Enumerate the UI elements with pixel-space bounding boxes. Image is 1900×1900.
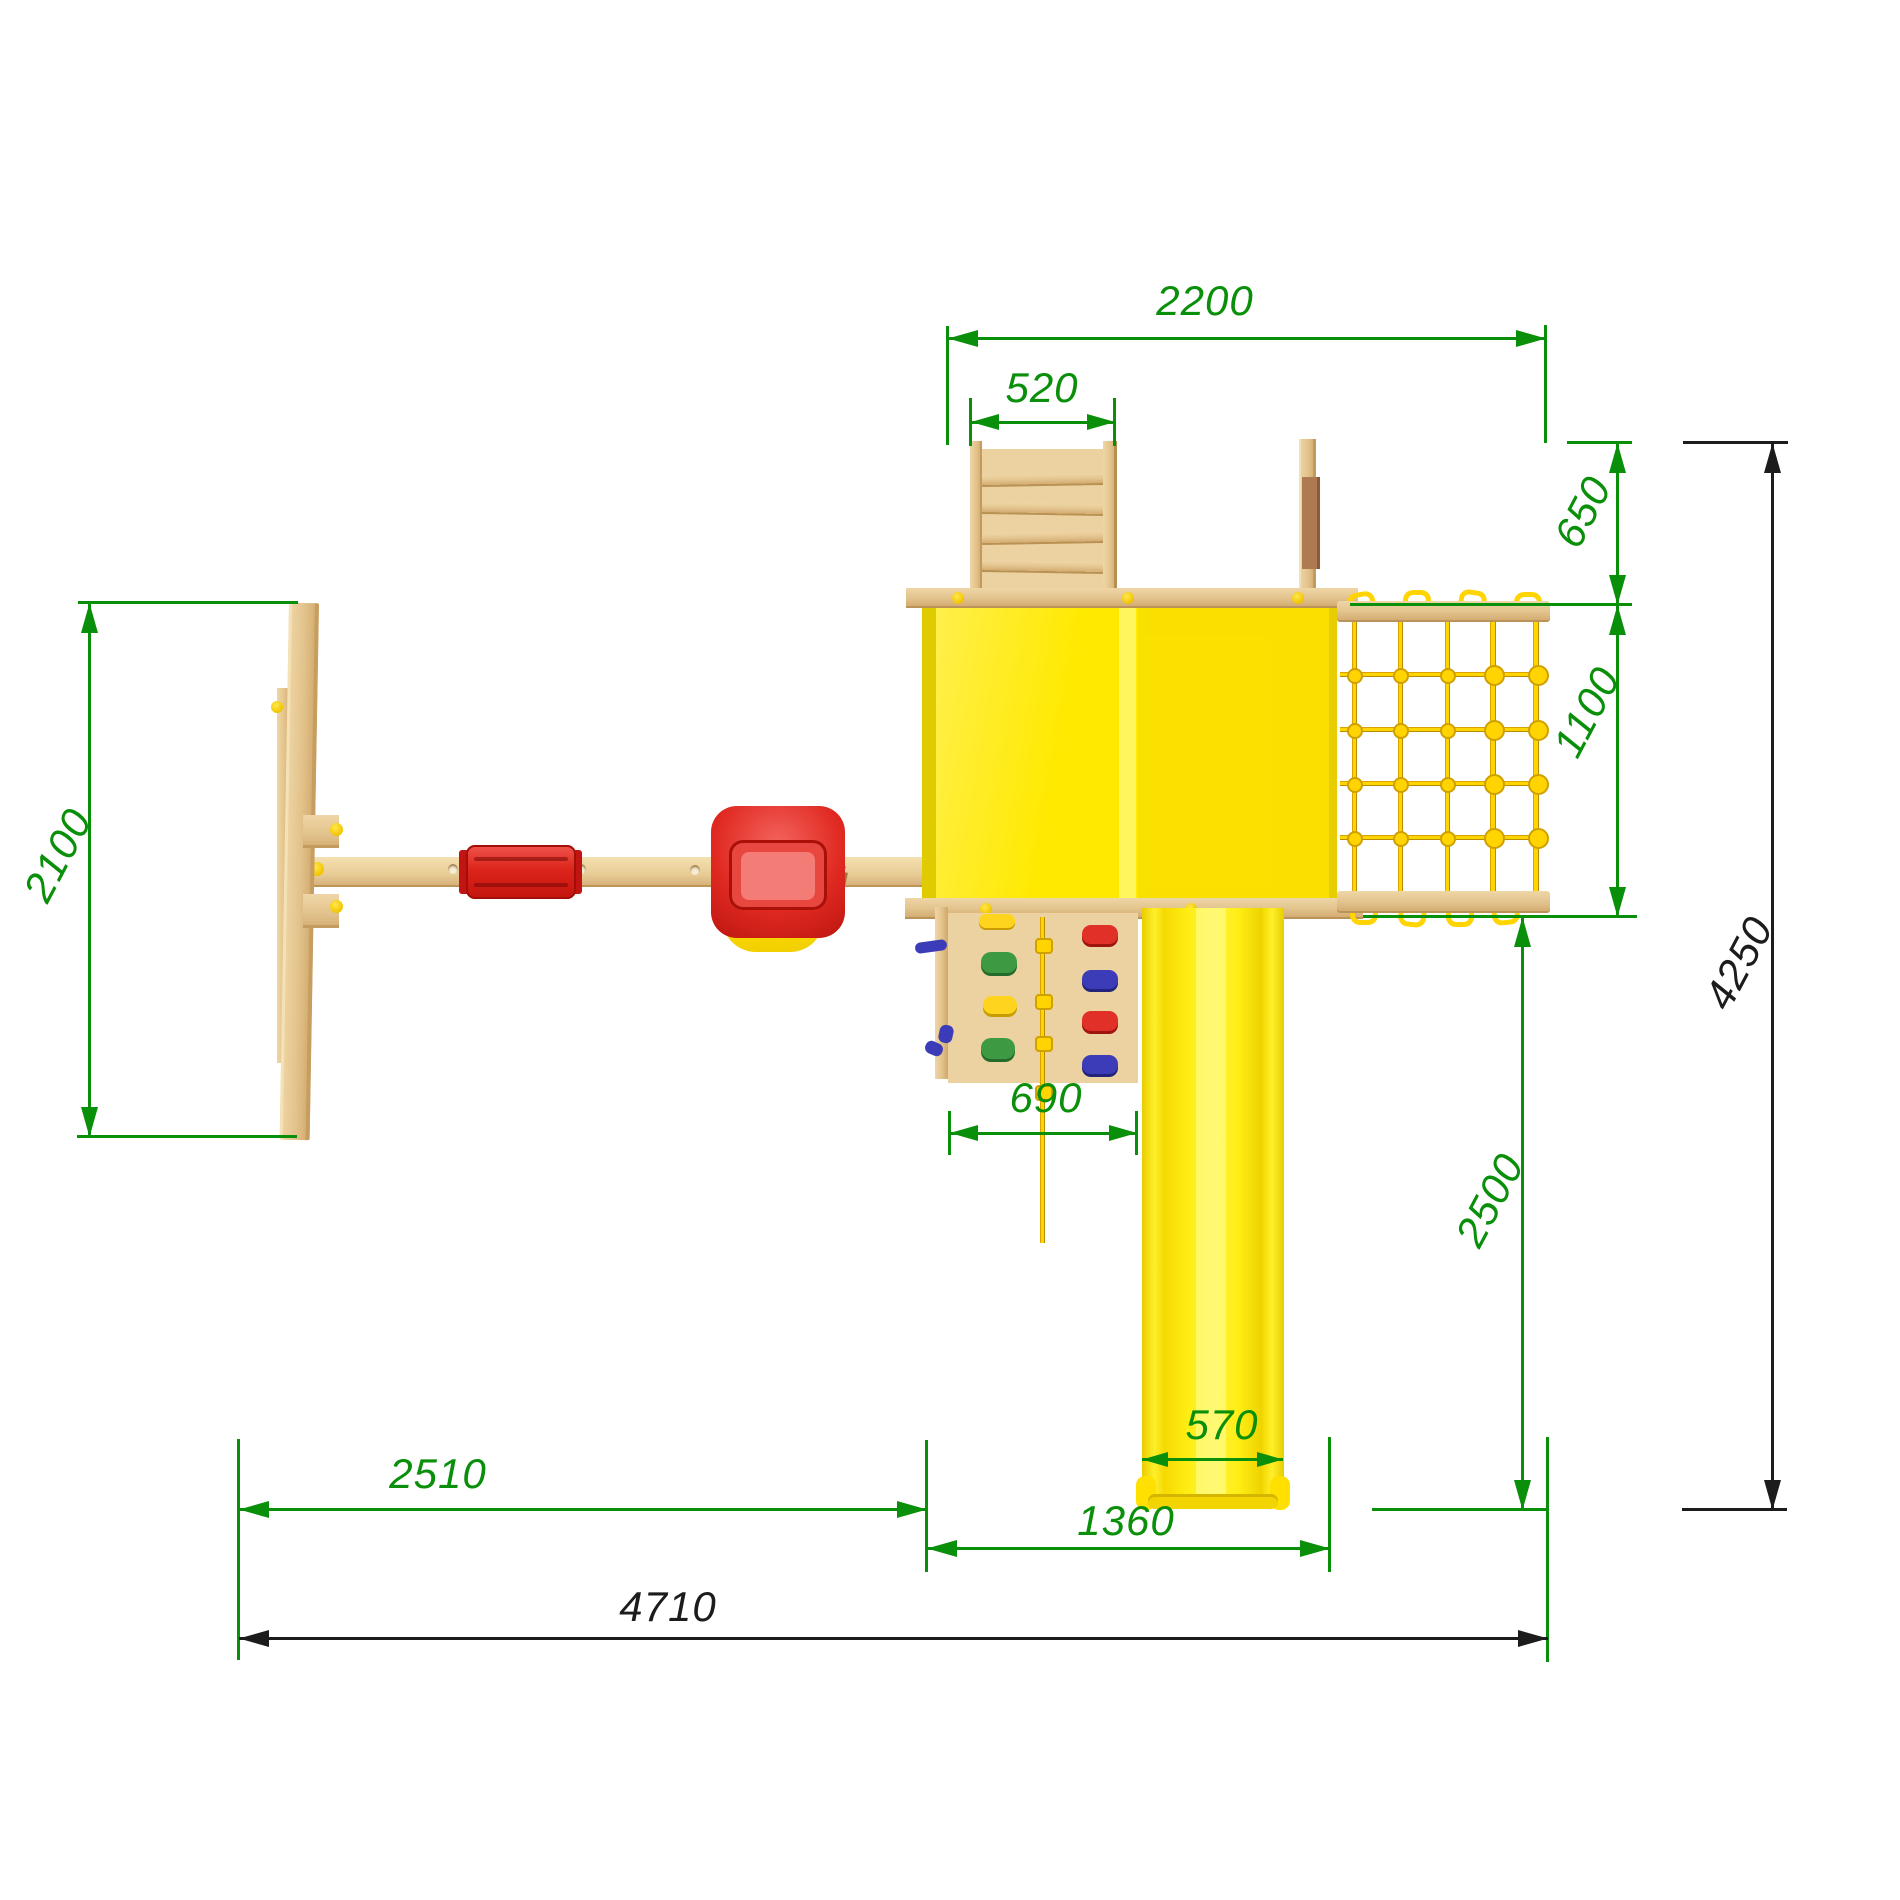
dim-1100-tick-mid — [1350, 603, 1632, 606]
net-rope-hook — [1446, 910, 1474, 927]
trim-bolt — [1122, 592, 1134, 604]
ladder-step — [982, 531, 1103, 543]
dim-650-tick-top — [1567, 441, 1632, 444]
net-knot — [1393, 668, 1409, 684]
dim-2200-ext-left — [946, 326, 949, 445]
tower-roof-sheen — [936, 592, 1116, 909]
trim-bolt — [1292, 592, 1304, 604]
net-knot — [1440, 668, 1456, 684]
dim-1100-tick-bottom — [1363, 915, 1637, 918]
net-knot — [1528, 665, 1549, 686]
dim-label-4710: 4710 — [619, 1583, 716, 1631]
net-vertical-rope — [1445, 608, 1450, 904]
baby-swing-seat-cushion — [741, 852, 815, 900]
slide-right-rail — [1262, 908, 1284, 1506]
dim-2100-tick-bottom — [77, 1135, 297, 1138]
ladder-step — [982, 560, 1103, 572]
dim-520-arrow-right — [1087, 414, 1115, 430]
ladder-step — [982, 502, 1103, 514]
beam-hole — [448, 864, 458, 874]
dim-520-arrow-left — [971, 414, 999, 430]
dim-label-4250: 4250 — [1695, 909, 1783, 1018]
net-knot — [1528, 828, 1549, 849]
dim-4250-tick-top — [1683, 441, 1788, 444]
dim-2510-arrow-left — [239, 1501, 269, 1518]
net-knot — [1484, 828, 1505, 849]
slide-left-rail — [1142, 908, 1165, 1506]
dim-overall-ext-right — [1546, 1437, 1549, 1662]
dim-690-arrow-left — [950, 1125, 978, 1141]
tower-roof-right-edge — [1329, 592, 1337, 909]
dim-1100-line — [1616, 605, 1619, 917]
dim-1360-ext-left — [925, 1440, 928, 1572]
dim-2500-arrow-down — [1514, 1480, 1531, 1510]
dim-2200-arrow-right — [1516, 330, 1546, 347]
dim-2100-line — [88, 603, 91, 1137]
dim-label-2510: 2510 — [389, 1450, 486, 1498]
net-knot — [1484, 720, 1505, 741]
playground-plan-drawing: 2200 520 2100 650 1100 690 2500 570 1360 — [0, 0, 1900, 1900]
dim-1100-arrow-down — [1609, 887, 1626, 917]
dim-2100-arrow-down — [81, 1107, 98, 1137]
net-knot — [1484, 774, 1505, 795]
dim-4250-tick-bottom — [1682, 1508, 1787, 1511]
ladder-panel — [982, 449, 1103, 598]
dim-label-520: 520 — [1005, 364, 1078, 412]
net-knot — [1393, 723, 1409, 739]
dim-690-tick-right — [1135, 1111, 1138, 1155]
net-bottom-bar — [1337, 891, 1550, 911]
dim-overall-ext-left — [237, 1439, 240, 1660]
aframe-bolt — [271, 701, 283, 713]
swing-aframe-leg-plank — [280, 603, 319, 1140]
tower-roof-left-shade — [922, 592, 936, 909]
net-rope-hook — [1397, 909, 1427, 929]
net-knot — [1440, 723, 1456, 739]
net-vertical-rope — [1533, 608, 1539, 904]
dim-1360-arrow-right — [1300, 1540, 1330, 1557]
beam-hole — [690, 865, 700, 875]
dim-4250-line — [1771, 443, 1774, 1510]
dim-4710-arrow-left — [239, 1630, 269, 1647]
net-knot — [1440, 777, 1456, 793]
tower-roof-right-shade — [1138, 592, 1337, 909]
net-knot — [1347, 723, 1363, 739]
dim-label-570: 570 — [1185, 1401, 1258, 1449]
climb-rope-knot — [1035, 1036, 1053, 1052]
dim-690-arrow-right — [1109, 1125, 1137, 1141]
dim-1360-line — [927, 1547, 1330, 1550]
dim-690-tick-left — [948, 1111, 951, 1155]
dim-4710-arrow-right — [1518, 1630, 1548, 1647]
dim-650-arrow-down — [1609, 575, 1626, 605]
climb-hold-green — [981, 1038, 1015, 1059]
dim-4250-arrow-down — [1764, 1480, 1781, 1510]
dim-label-650: 650 — [1545, 468, 1622, 555]
dim-520-tick-left — [969, 398, 972, 446]
net-vertical-rope — [1398, 608, 1403, 904]
net-vertical-rope — [1352, 608, 1357, 904]
net-knot — [1393, 831, 1409, 847]
net-knot — [1440, 831, 1456, 847]
dim-2500-tick-bottom — [1372, 1508, 1548, 1511]
ladder-step — [982, 473, 1103, 485]
climb-hold-blue — [1082, 970, 1118, 989]
dim-label-690: 690 — [1009, 1074, 1082, 1122]
aframe-bolt — [330, 900, 343, 913]
dim-2510-arrow-right — [897, 1501, 927, 1518]
dim-520-tick-right — [1113, 398, 1116, 446]
tower-fence-board — [1302, 477, 1320, 569]
net-knot — [1347, 668, 1363, 684]
dim-2100-tick-top — [78, 601, 298, 604]
net-vertical-rope — [1490, 608, 1496, 904]
dim-1360-arrow-left — [927, 1540, 957, 1557]
climb-hold-green — [981, 952, 1017, 973]
climb-hold-blue — [1082, 1055, 1118, 1074]
dim-2200-ext-right — [1544, 325, 1547, 443]
climb-hold-red — [1082, 1011, 1118, 1031]
swing-flat-seat — [466, 845, 576, 899]
aframe-bolt — [330, 823, 343, 836]
net-knot — [1347, 777, 1363, 793]
dim-690-line — [950, 1132, 1137, 1135]
net-knot — [1528, 774, 1549, 795]
dim-2200-line — [948, 337, 1546, 340]
trim-bolt — [952, 592, 964, 604]
ladder-rail-right — [1103, 441, 1117, 598]
ladder-rail-left — [970, 441, 982, 598]
climb-hold-yellow — [979, 914, 1015, 928]
climb-rope-knot — [1035, 994, 1053, 1010]
dim-650-arrow-up — [1609, 443, 1626, 473]
dim-2200-arrow-left — [948, 330, 978, 347]
tower-roof-ridge-highlight — [1119, 592, 1136, 909]
net-knot — [1393, 777, 1409, 793]
dim-1360-ext-right — [1328, 1437, 1331, 1572]
climb-rope-knot — [1035, 938, 1053, 954]
swing-flat-seat-groove — [474, 857, 568, 861]
climb-hold-red — [1082, 925, 1118, 944]
climb-hold-yellow — [983, 996, 1017, 1014]
dim-2510-line — [239, 1508, 927, 1511]
dim-label-1360: 1360 — [1077, 1497, 1174, 1545]
swing-flat-seat-groove — [474, 883, 568, 887]
net-knot — [1484, 665, 1505, 686]
dim-2500-line — [1521, 917, 1524, 1510]
dim-label-2200: 2200 — [1156, 277, 1253, 325]
net-knot — [1347, 831, 1363, 847]
dim-4250-arrow-up — [1764, 443, 1781, 473]
dim-4710-line — [239, 1637, 1548, 1640]
dim-2100-arrow-up — [81, 603, 98, 633]
dim-1100-arrow-up — [1609, 605, 1626, 635]
